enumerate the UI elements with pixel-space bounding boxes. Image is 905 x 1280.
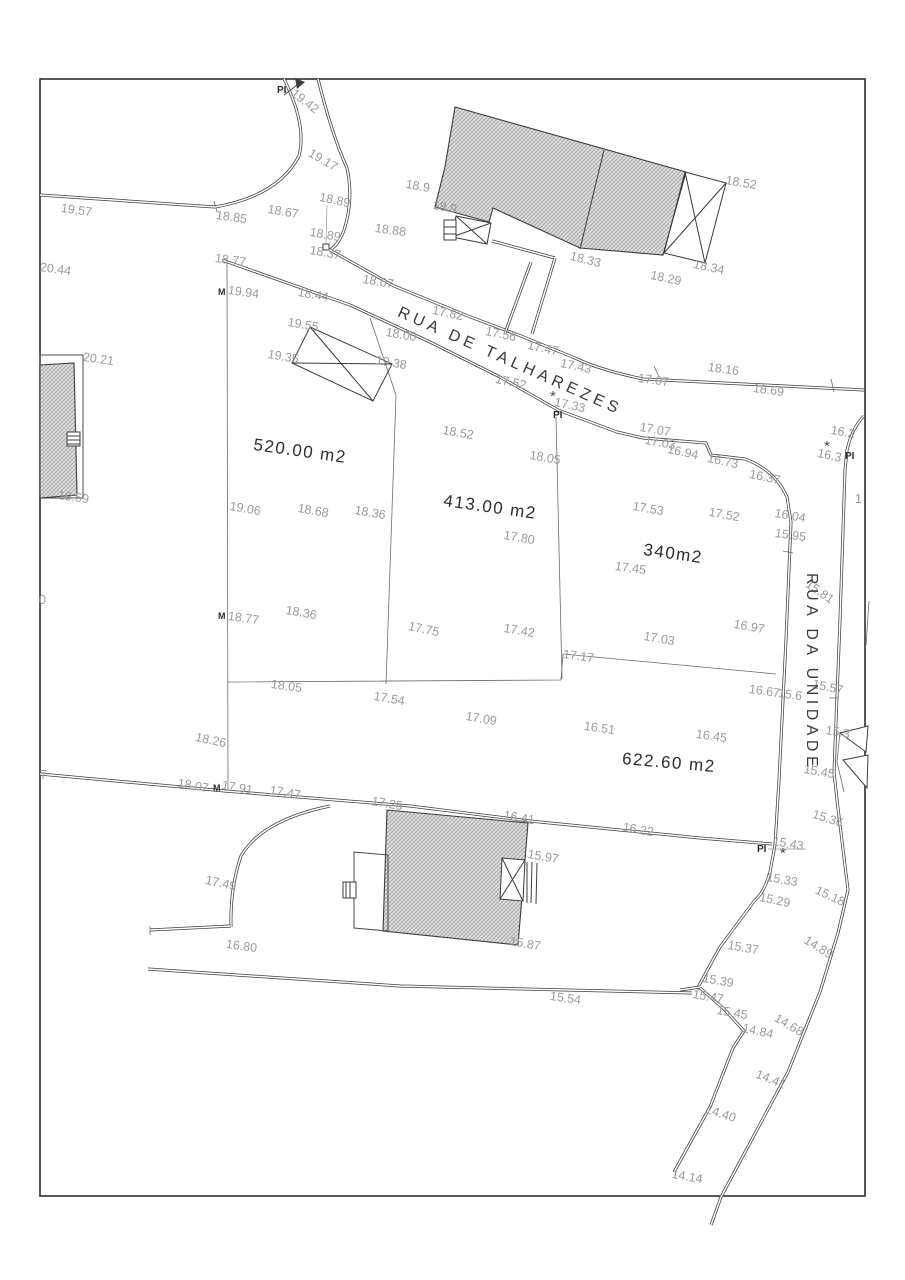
parcel-line-west bbox=[227, 259, 228, 789]
rua-de-talharezes-upper-edge bbox=[330, 250, 864, 390]
plan-linework bbox=[0, 0, 905, 1280]
rua-da-unidade-east-edge bbox=[711, 416, 864, 1225]
road-corner-arc bbox=[215, 79, 301, 207]
boundary-15-54 bbox=[148, 969, 692, 993]
building-top-steps bbox=[444, 220, 456, 240]
parcel-line-east bbox=[556, 417, 562, 679]
road-corner-arc bbox=[215, 79, 301, 207]
parcel-line-horizontal bbox=[228, 654, 776, 682]
road-top-left bbox=[40, 195, 215, 207]
rua-da-unidade-east-edge bbox=[711, 416, 864, 1225]
driveway-horizontal bbox=[492, 241, 555, 258]
driveway-edge-right bbox=[532, 258, 555, 334]
road-fork-west-edge bbox=[674, 988, 744, 1172]
building-bottom-steps-right bbox=[527, 862, 537, 904]
driveway-edge-left bbox=[505, 262, 531, 333]
parcel-boundaries bbox=[227, 205, 869, 849]
square-marker bbox=[323, 244, 329, 250]
survey-flag-lower bbox=[843, 755, 868, 788]
survey-plan: 19.42PI19.1719.5718.8518.6718.8918.8818.… bbox=[0, 0, 905, 1280]
road-bottom-left-curve bbox=[231, 806, 330, 927]
survey-flag-upper bbox=[840, 726, 868, 752]
leader-18-37 bbox=[326, 205, 327, 244]
parcel-line-mid bbox=[370, 318, 396, 684]
buildings bbox=[40, 107, 726, 945]
road-vertical-right-edge bbox=[318, 79, 350, 250]
road-bottom-left-curve bbox=[231, 806, 330, 927]
building-left-hatched bbox=[40, 363, 77, 498]
rua-de-talharezes-upper-edge bbox=[330, 250, 864, 390]
road-fork-west-edge bbox=[674, 988, 744, 1172]
roads bbox=[40, 79, 864, 1225]
boundary-15-54 bbox=[148, 969, 692, 993]
